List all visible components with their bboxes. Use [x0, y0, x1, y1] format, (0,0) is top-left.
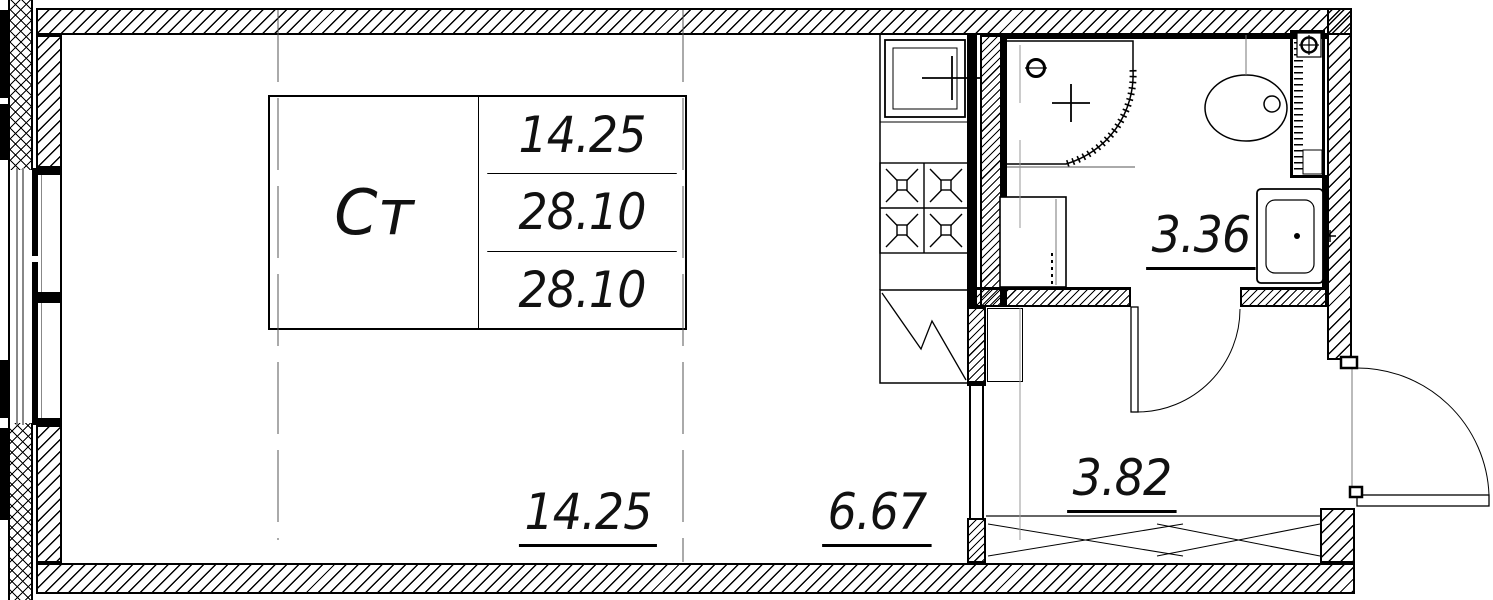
burner-icon	[886, 214, 918, 247]
entrance-door	[1341, 357, 1489, 506]
shower-tray-icon	[1007, 41, 1135, 167]
toilet-icon	[1205, 35, 1287, 141]
fridge-icon	[880, 290, 968, 383]
bathroom-door-leaf	[1131, 307, 1138, 412]
vent-grille-icon	[1297, 33, 1322, 174]
entrance-door-swing-arc	[1355, 368, 1489, 495]
fixtures-overlay	[0, 0, 1493, 600]
bathroom-door-swing-arc	[1138, 309, 1240, 412]
washing-machine-icon	[1000, 140, 1066, 287]
stove-icon	[880, 163, 968, 253]
kitchen-sink	[885, 40, 982, 117]
burner-icon	[930, 214, 962, 247]
wardrobe-sliding-doors-icon	[988, 524, 1320, 556]
floor-plan: Ст 14.25 28.10 28.10 14.25 6.67 3.82 3.3…	[0, 0, 1493, 600]
burner-icon	[930, 169, 962, 202]
entrance-door-jamb	[1341, 357, 1357, 368]
entrance-door-jamb	[1350, 487, 1362, 497]
entrance-door-leaf	[1357, 495, 1489, 506]
burner-icon	[886, 169, 918, 202]
bathroom-sink-icon	[1257, 189, 1336, 283]
bathroom-door	[1131, 307, 1240, 412]
